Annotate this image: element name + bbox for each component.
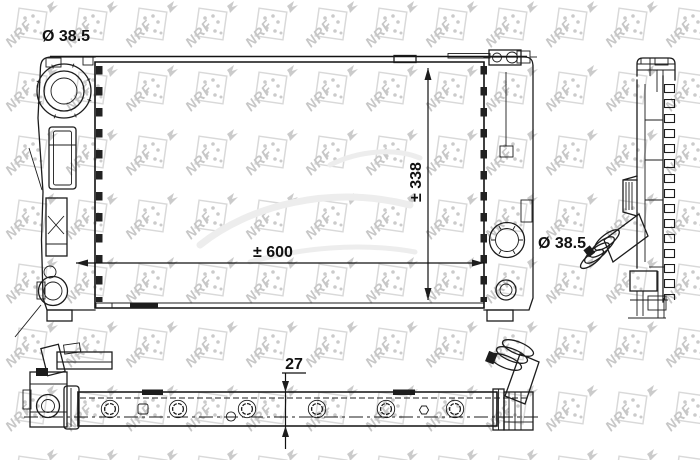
radiator-technical-drawing: NRF xyxy=(0,0,700,460)
label-hose-diameter: Ø 38.5 xyxy=(538,235,586,252)
side-tab-ladder xyxy=(664,84,676,300)
label-height: ± 338 xyxy=(408,162,425,202)
core-tab-strip-left xyxy=(96,66,104,302)
technical-drawing-page: NRF xyxy=(0,0,700,460)
label-width: ± 600 xyxy=(253,244,293,261)
label-cap-diameter: Ø 38.5 xyxy=(42,28,90,45)
core-tab-strip-right xyxy=(480,66,488,302)
label-thickness: 27 xyxy=(285,356,303,373)
watermark-layer xyxy=(0,0,700,460)
